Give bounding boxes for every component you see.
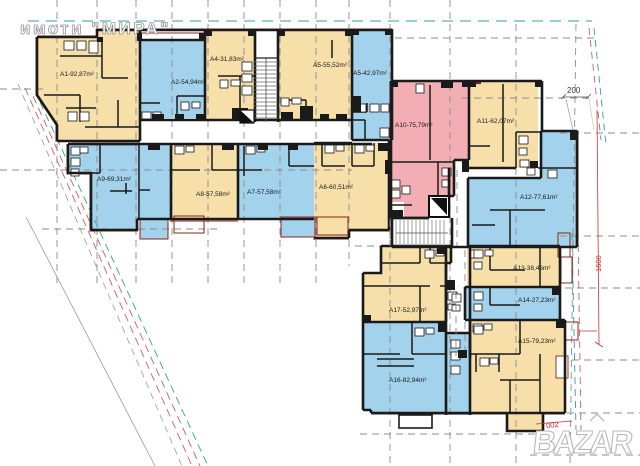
svg-text:A7-57,58m²: A7-57,58m² [247,189,282,196]
svg-text:A2-54,94m²: A2-54,94m² [171,79,206,86]
svg-text:A8-57,58m²: A8-57,58m² [196,191,231,198]
svg-text:A6-60,51m²: A6-60,51m² [319,184,354,191]
svg-text:A5-42,97m²: A5-42,97m² [353,70,388,77]
svg-text:A13-38,46m²: A13-38,46m² [513,265,551,272]
svg-text:A4-31,83m²: A4-31,83m² [210,56,245,63]
svg-text:A16-82,94m²: A16-82,94m² [389,377,427,384]
svg-text:1600: 1600 [594,255,603,272]
svg-text:BAZAR: BAZAR [531,424,635,460]
svg-text:A5-55,52m²: A5-55,52m² [313,62,348,69]
svg-text:A1-92,87m²: A1-92,87m² [60,71,95,78]
svg-text:A12-77,61m²: A12-77,61m² [520,194,558,201]
svg-text:A10-75,79m²: A10-75,79m² [395,122,433,129]
svg-text:A14-27,23m²: A14-27,23m² [518,297,556,304]
svg-text:A9-69,31m²: A9-69,31m² [97,176,132,183]
svg-text:200: 200 [567,86,581,95]
svg-text:A15-79,23m²: A15-79,23m² [518,338,556,345]
svg-text:имоти "МИРА": имоти "МИРА" [20,19,171,38]
svg-text:A17-52,97m²: A17-52,97m² [389,307,427,314]
svg-text:A11-62,07m²: A11-62,07m² [477,118,515,125]
